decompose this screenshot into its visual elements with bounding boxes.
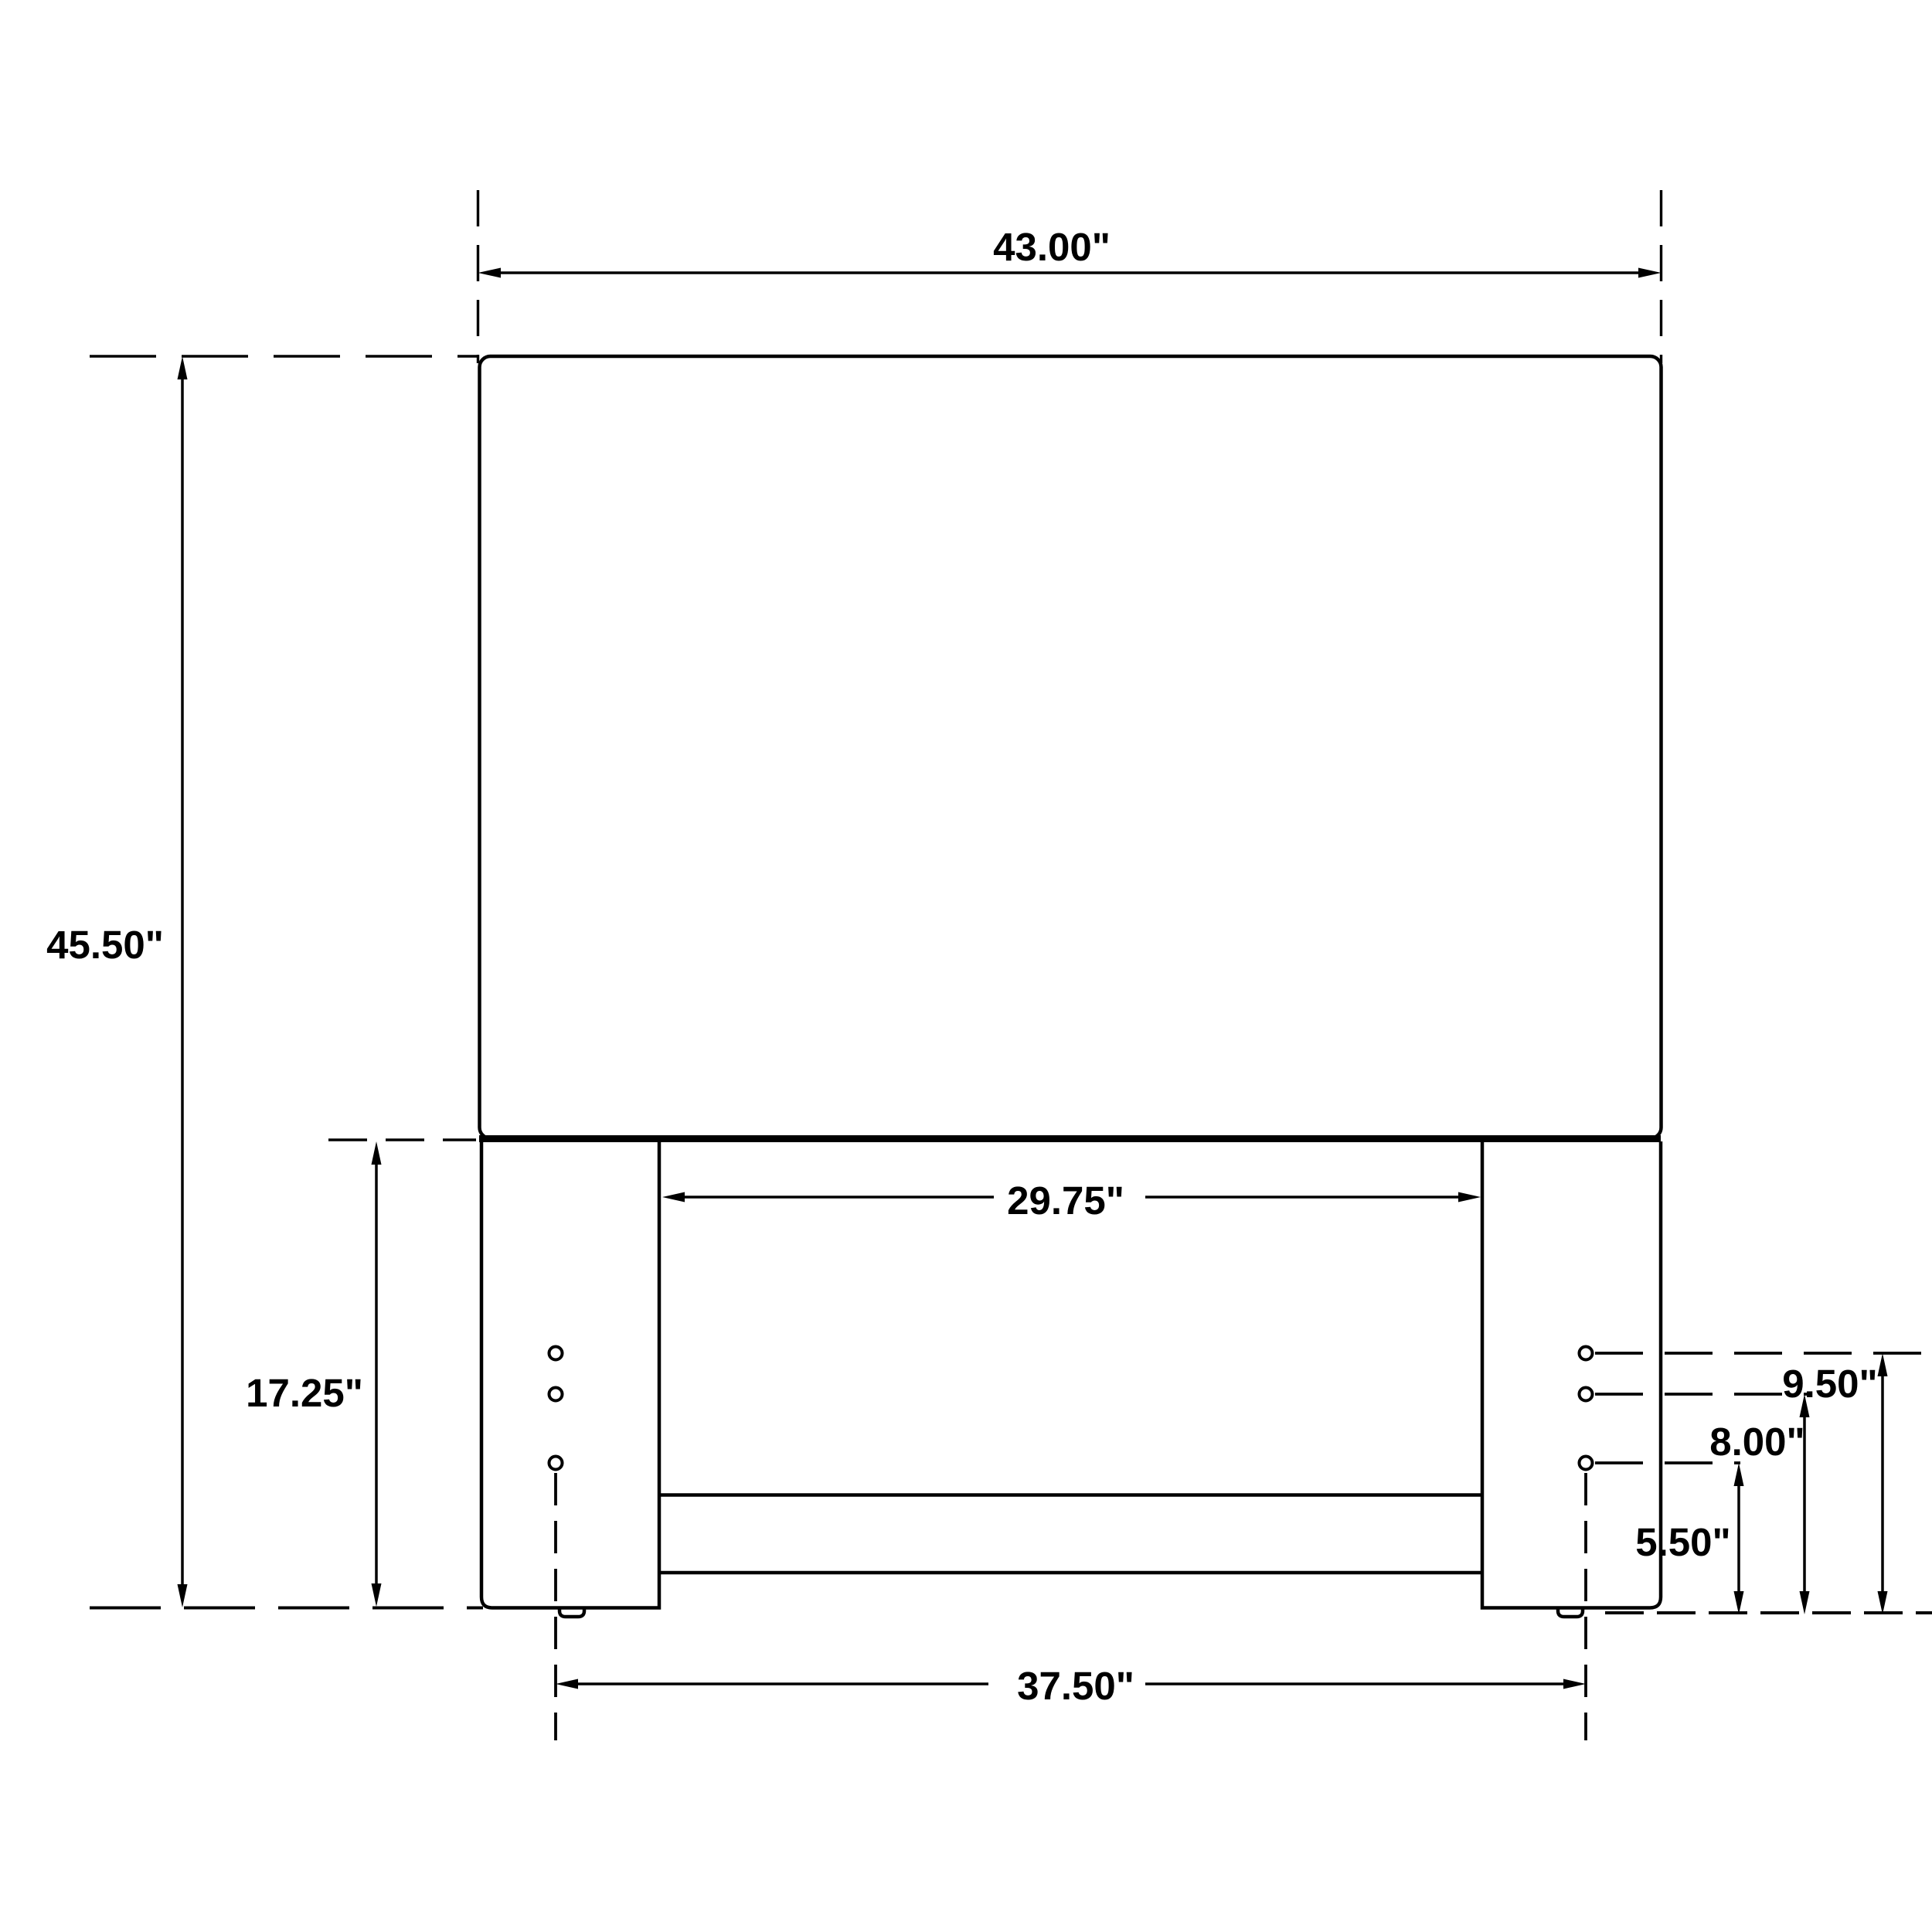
svg-text:45.50": 45.50" <box>46 923 164 967</box>
svg-text:17.25": 17.25" <box>246 1371 363 1415</box>
svg-text:29.75": 29.75" <box>1007 1179 1124 1223</box>
svg-text:37.50": 37.50" <box>1017 1664 1134 1708</box>
svg-text:9.50": 9.50" <box>1782 1362 1877 1406</box>
svg-text:43.00": 43.00" <box>993 225 1111 269</box>
svg-text:8.00": 8.00" <box>1709 1420 1804 1464</box>
svg-text:5.50": 5.50" <box>1635 1520 1730 1564</box>
